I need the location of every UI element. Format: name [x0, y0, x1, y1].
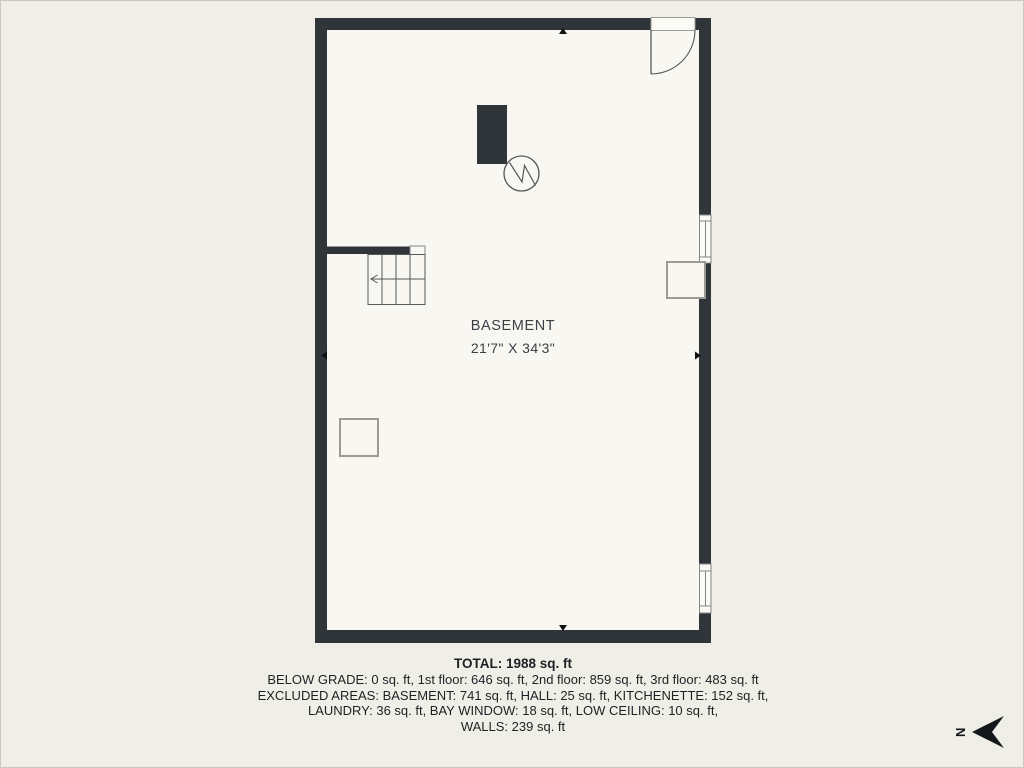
- wall-left: [315, 18, 327, 643]
- stair-wall: [327, 246, 425, 255]
- wall-right-middle-segment: [699, 263, 711, 564]
- window-lower-icon: [700, 564, 712, 613]
- electrical-panel-icon: [667, 262, 705, 298]
- summary-line: WALLS: 239 sq. ft: [1, 719, 1024, 735]
- wall-top-left-segment: [315, 18, 651, 30]
- support-post-icon: [340, 419, 378, 456]
- summary-line: LAUNDRY: 36 sq. ft, BAY WINDOW: 18 sq. f…: [1, 703, 1024, 719]
- chimney-icon: [477, 105, 507, 164]
- water-heater-icon: [504, 156, 539, 191]
- wall-right-lower-segment: [699, 613, 711, 643]
- window-upper-icon: [700, 215, 712, 263]
- wall-right-upper-segment: [699, 18, 711, 215]
- area-summary: TOTAL: 1988 sq. ft BELOW GRADE: 0 sq. ft…: [1, 656, 1024, 734]
- north-label: N: [953, 721, 969, 737]
- floor-plan-page: BASEMENT 21'7" X 34'3" TOTAL: 1988 sq. f…: [0, 0, 1024, 768]
- interior-wall-cap: [410, 246, 425, 255]
- interior-wall: [327, 247, 410, 255]
- basement-floor-area: [315, 18, 711, 643]
- door-opening: [651, 18, 695, 31]
- water-heater-circle: [504, 156, 539, 191]
- summary-line: BELOW GRADE: 0 sq. ft, 1st floor: 646 sq…: [1, 672, 1024, 688]
- stairs-icon: [368, 255, 425, 305]
- wall-bottom: [315, 630, 711, 643]
- total-area-line: TOTAL: 1988 sq. ft: [1, 656, 1024, 672]
- summary-line: EXCLUDED AREAS: BASEMENT: 741 sq. ft, HA…: [1, 688, 1024, 704]
- floor-plan-drawing: [1, 1, 1024, 768]
